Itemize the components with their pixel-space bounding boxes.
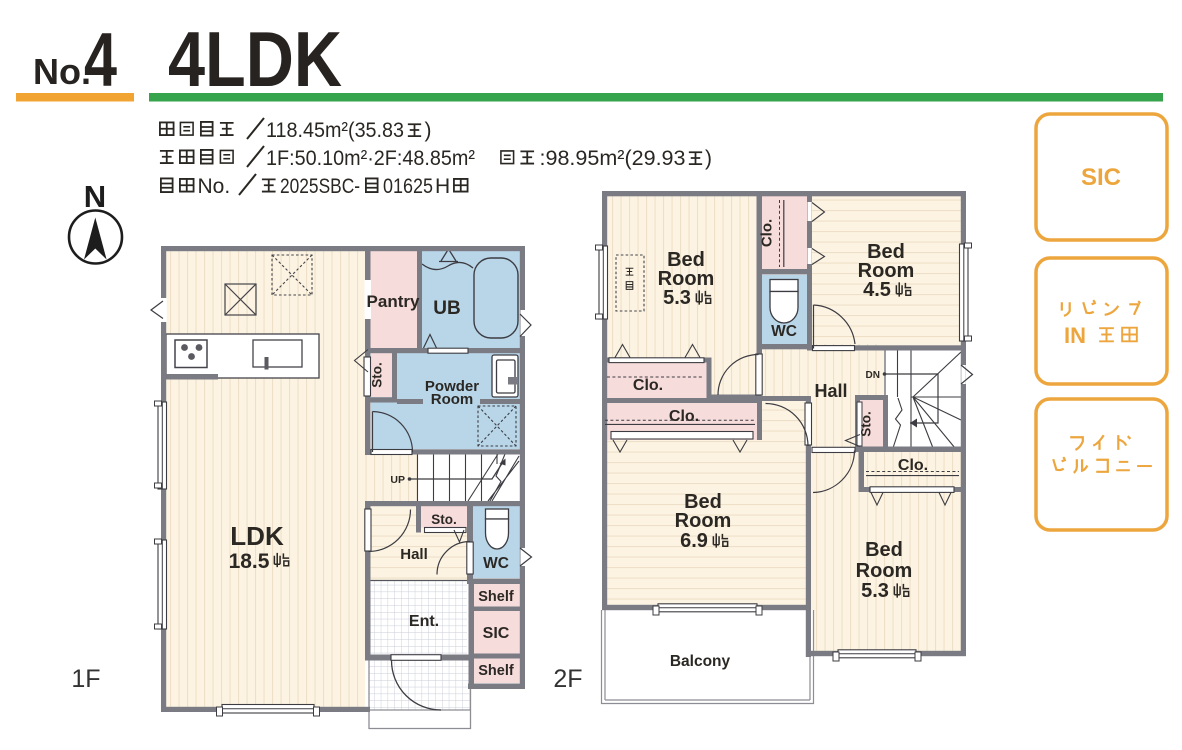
svg-text:WC: WC: [771, 323, 797, 340]
svg-text:UB: UB: [433, 298, 460, 319]
svg-text:Room: Room: [856, 560, 913, 582]
svg-text:1F:50.10m²·2F:48.85m²: 1F:50.10m²·2F:48.85m²: [266, 147, 475, 170]
svg-text:4: 4: [84, 18, 117, 103]
svg-text:): ): [425, 119, 432, 142]
svg-text:Clo.: Clo.: [759, 219, 776, 247]
svg-text:LDK: LDK: [230, 521, 284, 551]
svg-text:N: N: [84, 179, 106, 214]
svg-text:5.3: 5.3: [663, 287, 691, 309]
svg-text:Clo.: Clo.: [669, 408, 699, 425]
svg-text:UP: UP: [390, 474, 405, 486]
svg-text:IN: IN: [1064, 323, 1086, 348]
svg-text:Balcony: Balcony: [670, 653, 731, 670]
svg-text:Clo.: Clo.: [633, 377, 663, 394]
svg-text:118.45m²(35.83: 118.45m²(35.83: [266, 119, 404, 142]
svg-text:Bed: Bed: [865, 539, 903, 561]
svg-text:Pantry: Pantry: [367, 292, 420, 311]
svg-text:No.: No.: [33, 51, 91, 92]
svg-text:Sto.: Sto.: [859, 411, 874, 437]
svg-text:5.3: 5.3: [861, 580, 889, 602]
svg-text:Ent.: Ent.: [409, 613, 439, 630]
svg-text:Sto.: Sto.: [431, 512, 457, 527]
svg-text:SIC: SIC: [483, 625, 510, 642]
svg-text:Room: Room: [431, 391, 474, 408]
svg-text:Clo.: Clo.: [898, 457, 928, 474]
svg-text:4LDK: 4LDK: [168, 15, 342, 103]
svg-text:1F: 1F: [71, 665, 100, 693]
svg-text:Shelf: Shelf: [478, 663, 514, 679]
svg-text:01625: 01625: [383, 175, 433, 198]
svg-text:Sto.: Sto.: [370, 362, 385, 388]
svg-text:): ): [705, 147, 712, 170]
svg-text:2F: 2F: [553, 665, 582, 693]
svg-text:2025SBC-: 2025SBC-: [280, 175, 360, 198]
svg-text::98.95m²(29.93: :98.95m²(29.93: [540, 147, 686, 170]
svg-text:SIC: SIC: [1081, 164, 1121, 191]
svg-text:DN: DN: [866, 370, 880, 381]
svg-text:18.5: 18.5: [229, 550, 270, 573]
svg-text:Room: Room: [675, 510, 732, 532]
svg-text:Hall: Hall: [400, 546, 428, 563]
svg-text:4.5: 4.5: [863, 279, 891, 301]
svg-text:H: H: [435, 175, 450, 198]
svg-text:WC: WC: [483, 555, 509, 572]
svg-text:Shelf: Shelf: [478, 589, 514, 605]
svg-text:6.9: 6.9: [680, 530, 708, 552]
svg-text:Hall: Hall: [814, 381, 847, 401]
svg-text:No.: No.: [198, 175, 231, 198]
